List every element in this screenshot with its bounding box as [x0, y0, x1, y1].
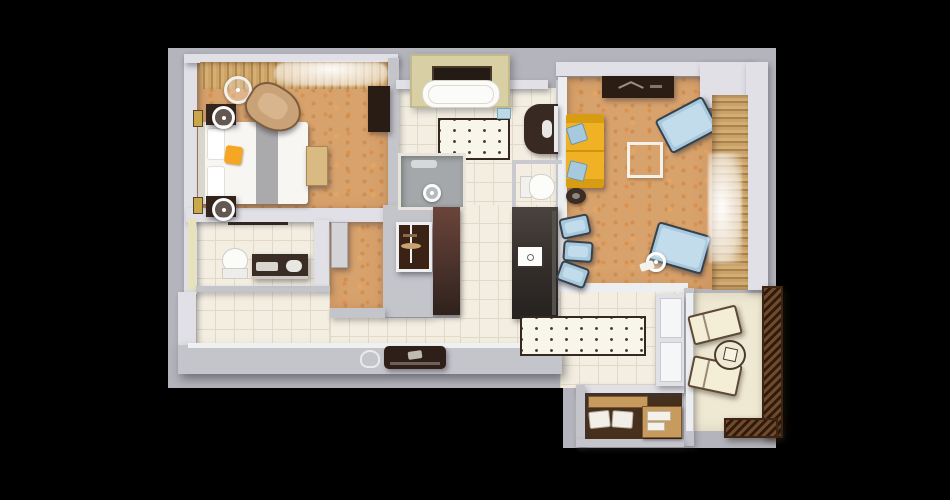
closet-left-wall: [576, 385, 585, 446]
bed-foot-bench: [306, 146, 328, 186]
bedroom-sheer-curtain: [274, 62, 388, 86]
shower-shelf: [411, 160, 437, 168]
island-counter-edge: [552, 211, 556, 315]
cooktop-burner: [527, 254, 534, 261]
bathtub-alcove: [410, 54, 510, 108]
island-cooktop: [516, 245, 544, 268]
kitchen-island: [512, 207, 558, 319]
kitchen-runner-rug: [520, 316, 646, 356]
closet-bottom-wall: [576, 439, 684, 447]
closet-top-wall: [576, 385, 684, 393]
door-pane: [660, 298, 682, 338]
toilet2-tank: [222, 268, 248, 279]
wall-bathroom2-hall: [196, 286, 330, 292]
toilet-nook: [512, 160, 562, 209]
bed-pillow: [207, 166, 225, 198]
toilet-bowl: [529, 174, 555, 200]
wall-art-top: [193, 110, 203, 127]
balcony-glazed-door[interactable]: [656, 294, 684, 386]
extension-dresser: [331, 222, 348, 268]
bathroom-towel: [497, 108, 511, 119]
glass-display-cabinet: [396, 222, 432, 272]
console-chevron: [630, 81, 644, 89]
second-vanity-sink: [286, 260, 302, 272]
balcony-railing-right: [762, 286, 783, 438]
second-bathroom-door[interactable]: [314, 220, 329, 286]
side-table-top: [572, 193, 580, 199]
yellow-sofa: [566, 114, 604, 188]
cabinet-dishes: [401, 243, 421, 249]
counter-appliance: [384, 346, 446, 369]
bathtub: [422, 80, 500, 108]
floorplan-stage: [0, 0, 950, 500]
second-bathroom-accent-wall: [188, 218, 196, 290]
tall-cabinet: [433, 207, 460, 315]
tv-console: [602, 76, 674, 98]
bed-runner: [256, 122, 278, 204]
nightstand-lamp-bottom: [212, 198, 235, 221]
entry-wall-step: [178, 292, 196, 346]
bedroom-wardrobe: [368, 86, 390, 132]
sofa-arm: [566, 179, 604, 188]
glass-kettle: [360, 350, 380, 368]
balcony-round-table: [714, 340, 746, 370]
bar-stool: [562, 240, 593, 263]
vanity-sink: [542, 120, 552, 138]
outer-wall-right: [746, 62, 768, 290]
closet-shelf-plank: [588, 396, 648, 408]
closet-folded-clothes: [588, 410, 611, 429]
wall-extension-hall: [330, 308, 385, 318]
balcony-railing-bottom: [724, 418, 778, 438]
wall-art-bottom: [193, 197, 203, 214]
nightstand-lamp-top: [212, 106, 235, 129]
sofa-cushion-seam: [566, 150, 604, 152]
second-vanity: [252, 254, 308, 279]
door-pane: [660, 342, 682, 382]
table-cube-ornament: [723, 347, 738, 362]
closet-drawer-unit: [642, 406, 682, 438]
window-curtains: [712, 95, 748, 290]
round-side-table: [566, 188, 586, 204]
armchair-seat: [254, 89, 291, 124]
bathtub-basin: [428, 85, 494, 104]
wall-bathroom-top-right: [504, 80, 548, 89]
double-bed: [198, 122, 308, 204]
coffee-table: [627, 142, 663, 178]
bed-headboard: [198, 122, 205, 204]
shower-stool: [423, 184, 441, 202]
towel-rail: [228, 222, 288, 225]
hall-floor-left: [196, 292, 330, 348]
drawer-clothes: [647, 411, 671, 421]
sofa-arm: [566, 114, 604, 123]
appliance-detail: [408, 350, 423, 360]
second-vanity-edge: [252, 276, 308, 279]
drawer-clothes: [647, 422, 665, 431]
sheer-curtain: [708, 153, 742, 263]
outer-wall-bottom-trim: [188, 343, 560, 348]
vanity-mirror: [554, 106, 558, 152]
cabinet-shelf-item: [403, 234, 417, 237]
bed-orange-cushion: [224, 145, 243, 165]
bed-pillow: [207, 128, 225, 160]
sofa-blue-cushion: [566, 123, 589, 146]
closet-folded-clothes: [611, 410, 633, 428]
bathroom-vanity: [524, 104, 558, 154]
console-item: [650, 85, 662, 88]
second-vanity-tray: [256, 262, 278, 271]
appliance-base: [390, 362, 440, 365]
shower: [398, 153, 466, 210]
